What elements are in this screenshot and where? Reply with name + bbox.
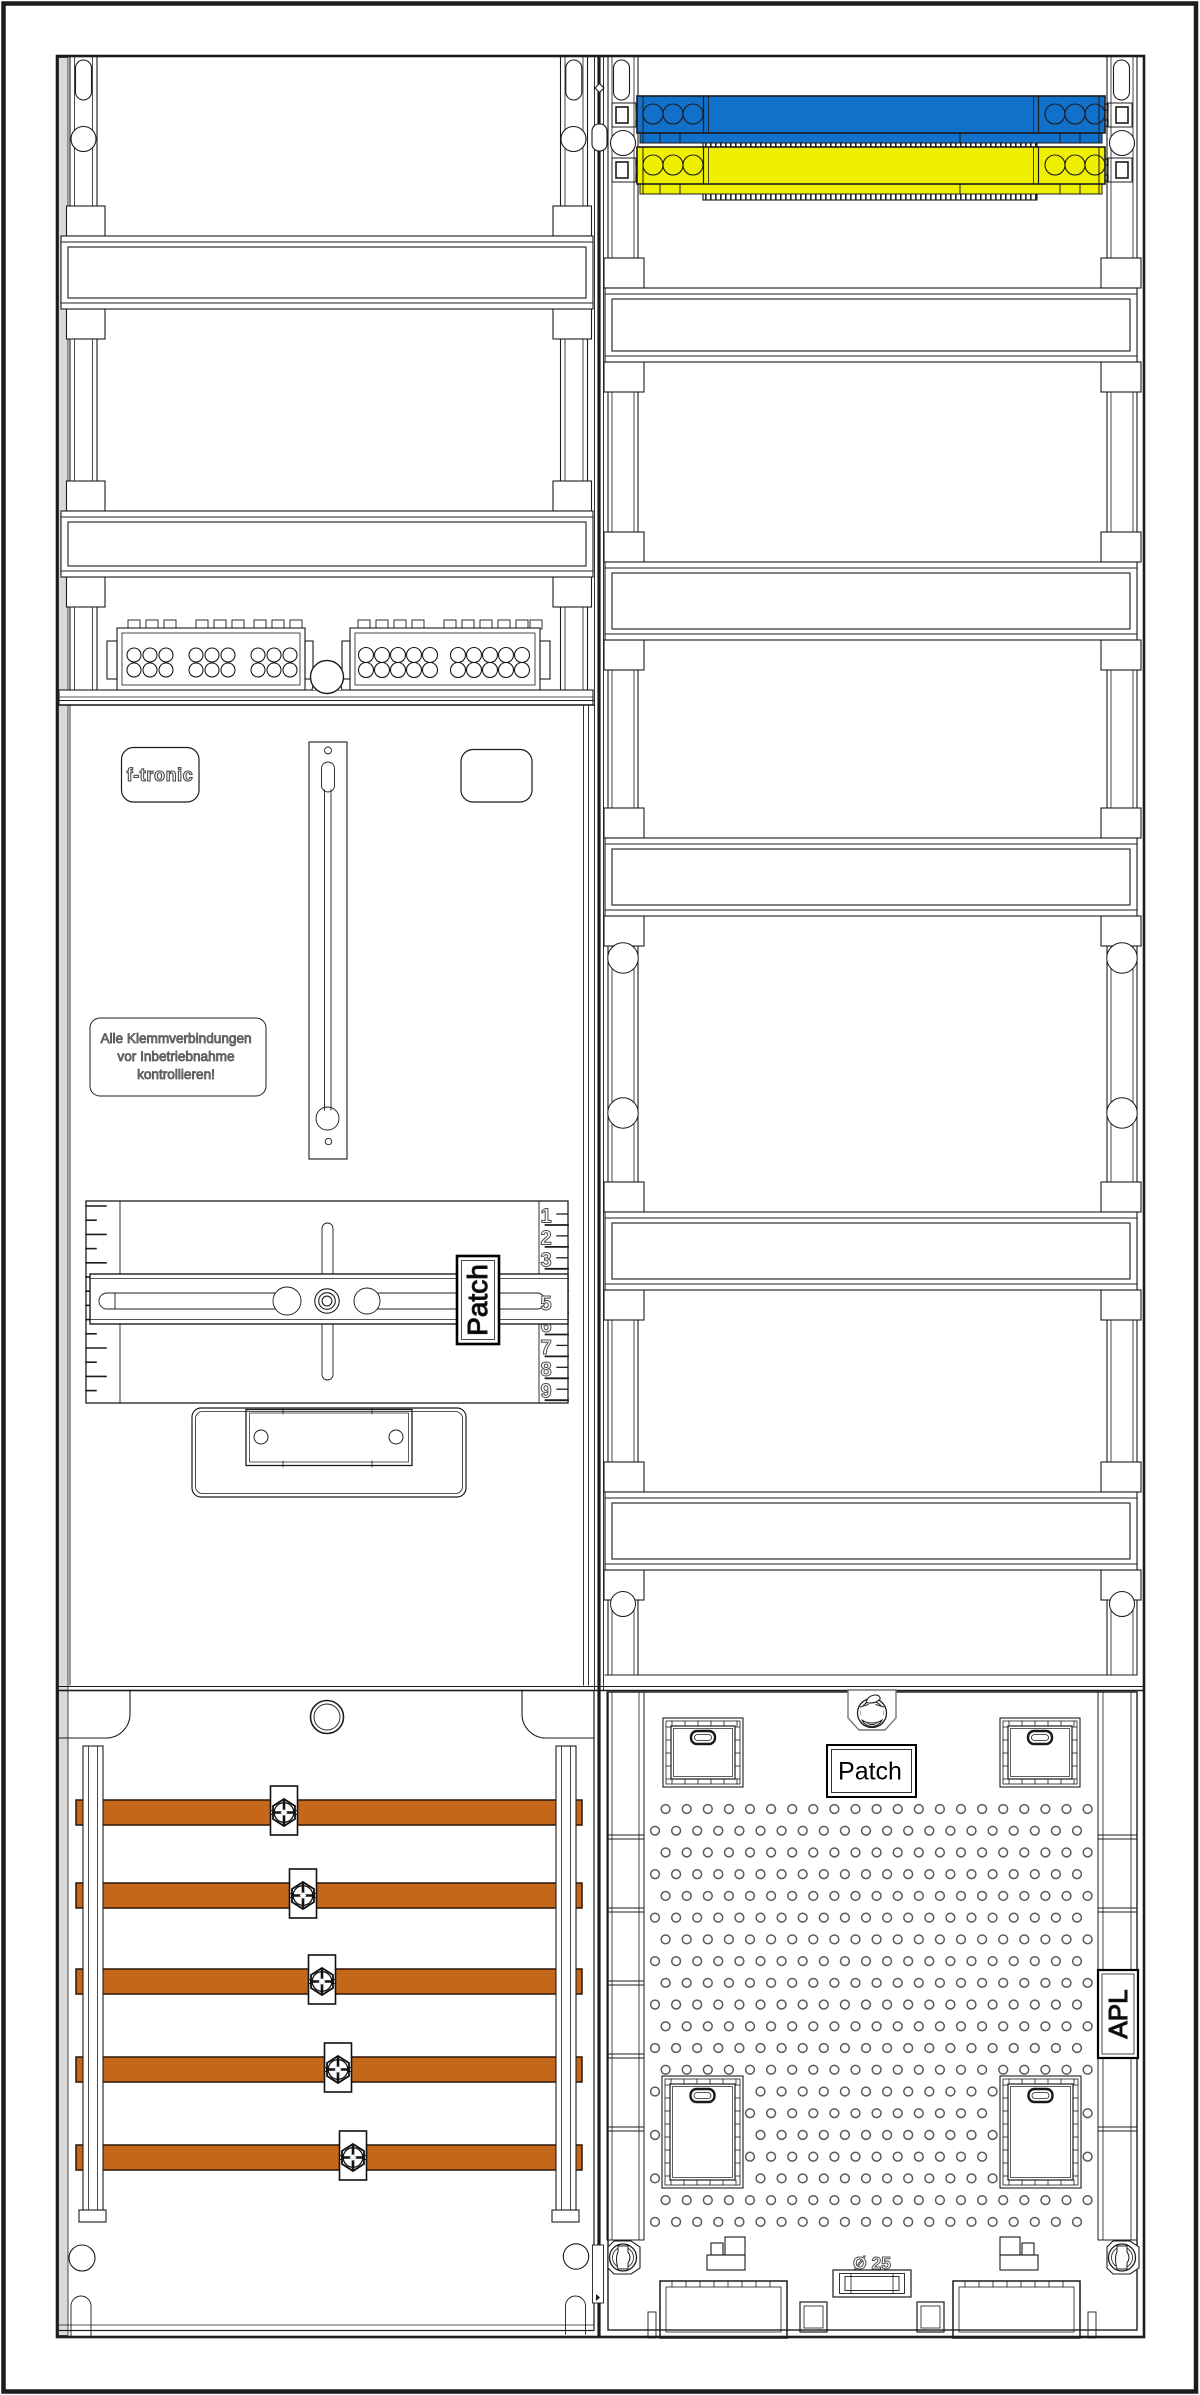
svg-text:vor Inbetriebnahme: vor Inbetriebnahme — [117, 1049, 234, 1064]
svg-text:Patch: Patch — [838, 1758, 902, 1786]
svg-text:Alle Klemmverbindungen: Alle Klemmverbindungen — [100, 1031, 251, 1046]
svg-text:kontrollieren!: kontrollieren! — [137, 1067, 215, 1082]
svg-text:5: 5 — [540, 1293, 551, 1315]
svg-text:Patch: Patch — [462, 1264, 493, 1336]
svg-text:APL: APL — [1103, 1989, 1133, 2038]
svg-text:f-tronic: f-tronic — [127, 765, 194, 785]
